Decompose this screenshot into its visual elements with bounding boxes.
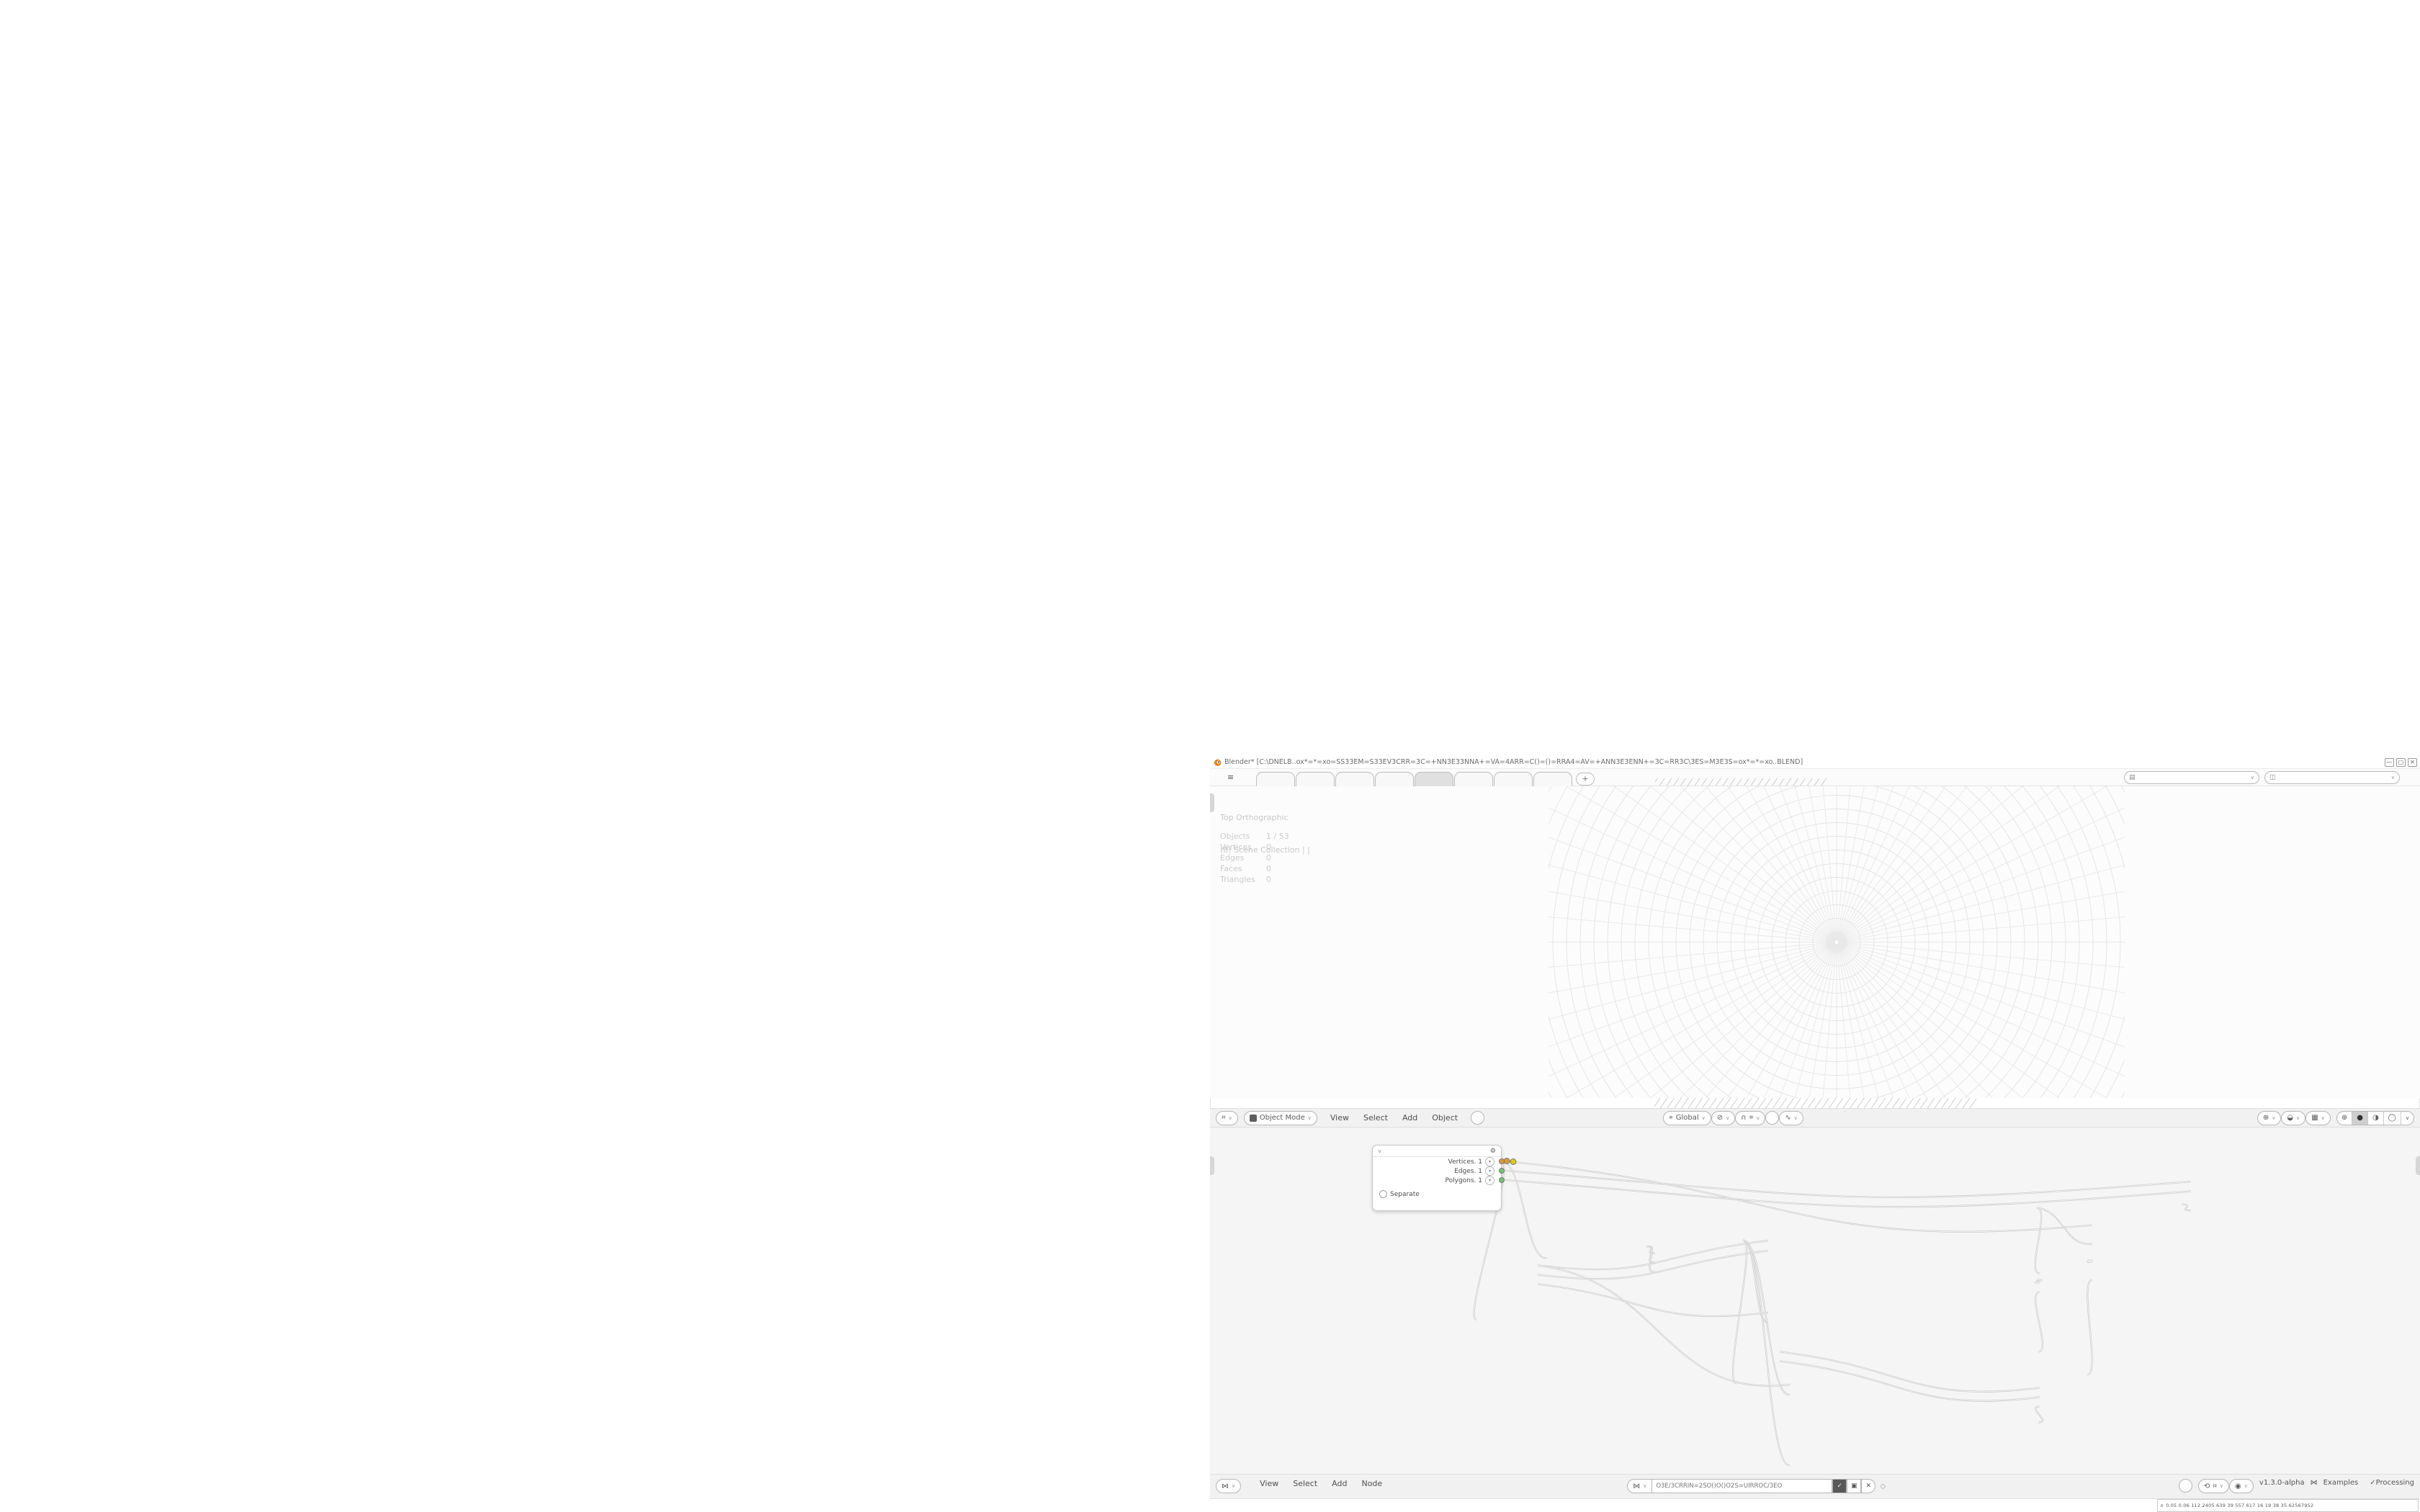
shading-mode-3[interactable]: ◯ [2384, 1112, 2401, 1125]
geometry-node-editor[interactable]: ∨⚙Vertices. 1▾Edges. 1▾Polygons. 1▾Separ… [1210, 1128, 2420, 1474]
examples-menu[interactable]: Examples [2323, 1479, 2359, 1487]
viewport-stat-row: Vertices0 [1220, 842, 1289, 852]
node-row: Edges. 1▾ [1373, 1166, 1501, 1176]
node-socket-orange [1499, 1158, 1505, 1164]
node-row: Vertices. 1▾ [1373, 1157, 1501, 1166]
editor-scroll-handle-left[interactable] [1210, 1156, 1214, 1175]
app-version-label: v1.3.0-alpha [2259, 1479, 2305, 1487]
minimize-button[interactable]: — [2385, 758, 2394, 767]
editor-type-button-nodes[interactable]: ⋈∨ [1216, 1479, 1241, 1493]
viewport-editor-icon: ⌗ [1222, 1114, 1226, 1122]
node-group-name-field[interactable]: O3E/3CRRIN=2SO()O()O2S=UIRROC/3EO [1652, 1479, 1832, 1493]
node-editor-header: ⋈∨ View Select Add Node ⋈∨ O3E/3CRRIN=2S… [1210, 1474, 2420, 1499]
window-titlebar: Blender* [C:\DNELB..ox*=*=xo=SS33EM=S33E… [1210, 756, 2420, 769]
menu-view[interactable]: View [1323, 1113, 1356, 1122]
nodetree-status-icon: ⋈ [2311, 1479, 2318, 1487]
node-torus-parameters[interactable]: ∨⚙Vertices. 1▾Edges. 1▾Polygons. 1▾Separ… [1372, 1145, 1502, 1211]
transform-orientation-selector[interactable]: ⌖ Global∨ [1663, 1111, 1711, 1125]
shading-mode-group: ⊕●◑◯∨ [2336, 1111, 2414, 1125]
proportional-editing-toggle[interactable] [1765, 1111, 1779, 1125]
status-circle-button[interactable] [2179, 1479, 2192, 1493]
node-row: Separate [1373, 1189, 1501, 1200]
menu-select[interactable]: Select [1356, 1113, 1395, 1122]
hatch-strip-bottom [1654, 1098, 1976, 1108]
orientation-icon: ⌖ [1669, 1114, 1673, 1122]
blender-logo-icon [1213, 758, 1222, 767]
hatch-strip-top [1655, 778, 1828, 786]
viewport-stat-row: Objects1 / 53 [1220, 831, 1289, 842]
check-icon: ✓ [2370, 1479, 2375, 1487]
scene-icon: ▤ [2129, 774, 2136, 781]
fake-user-shield-toggle[interactable]: ✓ [1832, 1479, 1847, 1493]
editor-scroll-handle-right[interactable] [2416, 1156, 2420, 1175]
checkbox[interactable] [1379, 1190, 1387, 1198]
viewport-stat-row: Triangles0 [1220, 874, 1289, 885]
scene-selector[interactable]: ▤ ∨ [2124, 771, 2259, 784]
workspace-tabs: + [1256, 772, 1595, 786]
blender-window: Blender* [C:\DNELB..ox*=*=xo=SS33EM=S33E… [1210, 756, 2420, 1512]
unlink-button[interactable]: ✕ [1861, 1479, 1875, 1493]
workspace-tab-3[interactable] [1335, 772, 1374, 786]
node-group-name-widget: ⋈∨ O3E/3CRRIN=2SO()O()O2S=UIRROC/3EO ✓ ▣… [1627, 1479, 1886, 1493]
viewport-view-name: Top Orthographic [1220, 812, 1310, 823]
quadrant-cell-bottom-right: Blender* [C:\DNELB..ox*=*=xo=SS33EM=S33E… [1210, 756, 2420, 1512]
new-copy-button[interactable]: ▣ [1847, 1479, 1861, 1493]
menu-object[interactable]: Object [1425, 1113, 1465, 1122]
add-workspace-button[interactable]: + [1576, 773, 1595, 786]
socket-menu-button[interactable]: ▾ [1485, 1157, 1494, 1166]
viewport-polar-grid [1549, 786, 2125, 1098]
magnet-icon: ∩ [1741, 1114, 1746, 1122]
snapping-selector[interactable]: ∩⌗∨ [1735, 1111, 1765, 1125]
overlays-toggle[interactable]: ◒∨ [2281, 1111, 2305, 1125]
workspace-tab-6[interactable] [1454, 772, 1493, 786]
browse-node-group-button[interactable]: ⋈∨ [1627, 1479, 1652, 1493]
node-socket-green [1499, 1177, 1505, 1183]
menu-add[interactable]: Add [1395, 1113, 1425, 1122]
nodetree-icon: ⋈ [1633, 1482, 1640, 1490]
nodetree-icon: ⋈ [1222, 1482, 1229, 1490]
workspace-tab-2[interactable] [1296, 772, 1335, 786]
node-row [1373, 1200, 1501, 1210]
object-mode-icon [1250, 1115, 1257, 1122]
menu-add[interactable]: Add [1325, 1479, 1354, 1488]
chevron-down-icon: ∨ [2251, 775, 2254, 780]
workspace-tab-8[interactable] [1533, 772, 1572, 786]
gizmo-toggle[interactable]: ⊕∨ [2257, 1111, 2282, 1125]
search-button[interactable] [1471, 1111, 1484, 1125]
bottom-strip: ∧ 0.05 0.06 112 2405 639 39 557 617 16 1… [1210, 1499, 2420, 1512]
toolbar-toggle-handle[interactable] [1210, 793, 1214, 812]
shading-dropdown[interactable]: ∨ [2401, 1112, 2414, 1125]
shading-mode-2[interactable]: ◑ [2368, 1112, 2384, 1125]
mode-selector[interactable]: Object Mode∨ [1244, 1111, 1317, 1125]
chevron-down-icon: ∨ [2391, 775, 2395, 780]
editor-type-button[interactable]: ⌗∨ [1216, 1111, 1238, 1125]
menu-view[interactable]: View [1252, 1479, 1286, 1488]
menu-select[interactable]: Select [1286, 1479, 1325, 1488]
view-layer-selector[interactable]: ◫ ∨ [2264, 771, 2400, 784]
quadrant-cell-top-right [1210, 0, 2420, 756]
node-header[interactable]: ∨⚙ [1373, 1146, 1501, 1157]
close-button[interactable]: ✕ [2408, 758, 2417, 767]
metrics-panel: ∧ 0.05 0.06 112 2405 639 39 557 617 16 1… [2157, 1499, 2419, 1512]
node-row: Polygons. 1▾ [1373, 1176, 1501, 1185]
node-socket-green [1499, 1168, 1505, 1174]
orientation-label: Global [1676, 1114, 1699, 1122]
socket-menu-button[interactable]: ▾ [1485, 1176, 1494, 1185]
shading-mode-0[interactable]: ⊕ [2337, 1112, 2352, 1125]
viewport-header: ⌗∨ Object Mode∨ View Select Add Object ⌖… [1210, 1108, 2420, 1128]
viewport-stat-row: Faces0 [1220, 863, 1289, 874]
pin-icon[interactable]: ◇ [1880, 1482, 1886, 1490]
pivot-point-selector[interactable]: ⊘∨ [1711, 1111, 1736, 1125]
mode-label: Object Mode [1260, 1114, 1305, 1122]
workspace-tab-1[interactable] [1256, 772, 1295, 786]
hamburger-menu-icon[interactable]: ≡ [1227, 773, 1239, 783]
quadrant-cell-bottom-left [0, 756, 1210, 1512]
xray-toggle[interactable]: ▦∨ [2305, 1111, 2331, 1125]
workspace-tab-5[interactable] [1415, 772, 1453, 786]
collapse-chevron-icon[interactable]: ∨ [1378, 1148, 1381, 1154]
view-layer-icon: ◫ [2269, 774, 2276, 781]
metrics-values: 0.05 0.06 112 2405 639 39 557 617 16 19 … [2166, 1503, 2313, 1508]
expand-metrics-icon[interactable]: ∧ [2160, 1503, 2164, 1508]
menu-node[interactable]: Node [1354, 1479, 1389, 1488]
workspace-tab-7[interactable] [1494, 772, 1533, 786]
node-header-icon: ⚙ [1490, 1148, 1496, 1155]
processing-status-label: Processing [2376, 1479, 2414, 1487]
socket-menu-button[interactable]: ▾ [1485, 1166, 1494, 1176]
window-title: Blender* [C:\DNELB..ox*=*=xo=SS33EM=S33E… [1224, 758, 1803, 766]
falloff-icon: ∿ [1785, 1114, 1791, 1122]
viewport-3d[interactable]: Top Orthographic (8) Scene Collection | … [1210, 786, 2420, 1098]
overlay-selector-nodes[interactable]: ◉∨ [2229, 1479, 2254, 1493]
viewport-statistics: Objects1 / 53Vertices0Edges0Faces0Triang… [1220, 831, 1289, 885]
proportional-falloff-selector[interactable]: ∿∨ [1779, 1111, 1803, 1125]
shading-mode-1[interactable]: ● [2352, 1112, 2368, 1125]
quadrant-cell-top-left [0, 0, 1210, 756]
snapping-selector-nodes[interactable]: ⟲⌗∨ [2198, 1479, 2229, 1493]
workspace-tab-4[interactable] [1375, 772, 1414, 786]
viewport-stat-row: Edges0 [1220, 852, 1289, 863]
four-quadrant-mirror-stage: Blender* [C:\DNELB..ox*=*=xo=SS33EM=S33E… [0, 0, 2420, 1512]
restore-button[interactable]: ▢ [2396, 758, 2406, 767]
